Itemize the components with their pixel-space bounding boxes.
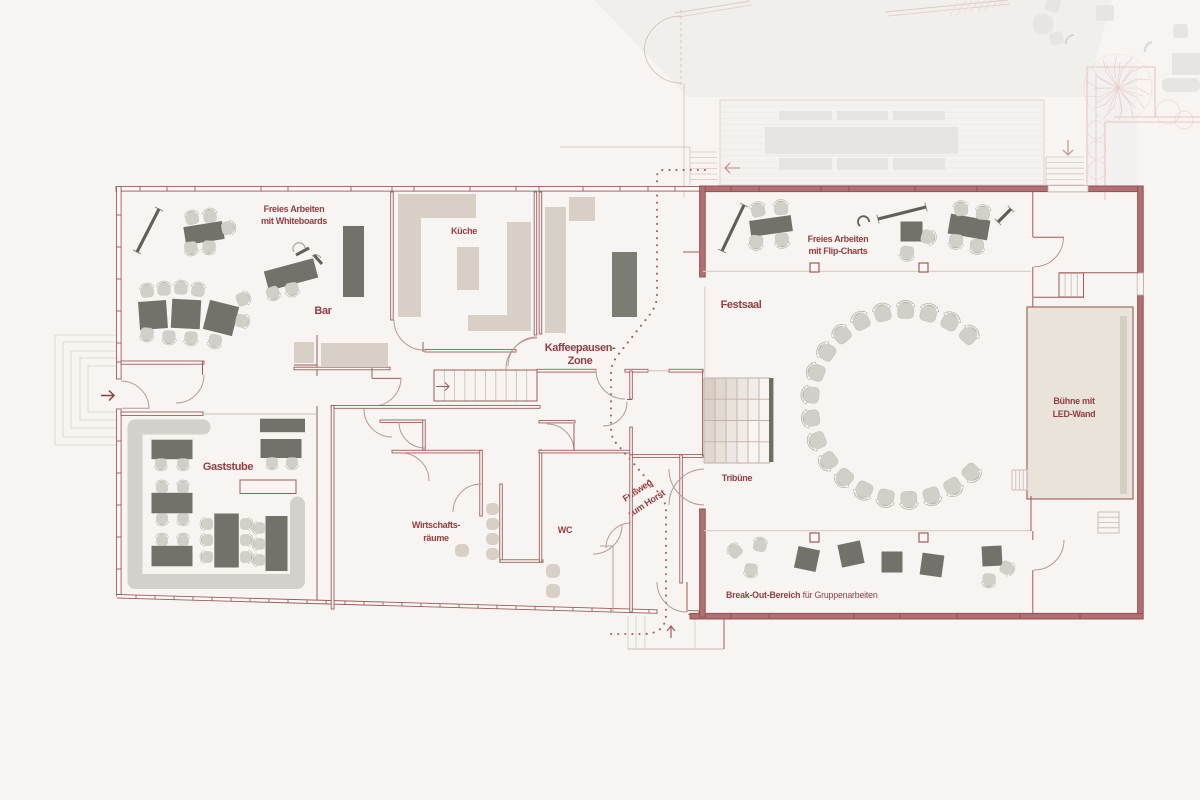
svg-text:Küche: Küche — [451, 226, 477, 236]
svg-text:LED-Wand: LED-Wand — [1053, 409, 1096, 419]
svg-text:Freies Arbeiten: Freies Arbeiten — [264, 204, 325, 214]
svg-text:räume: räume — [423, 533, 449, 543]
svg-text:Tribüne: Tribüne — [722, 473, 753, 483]
svg-text:Bühne mit: Bühne mit — [1053, 396, 1095, 406]
svg-text:Festsaal: Festsaal — [721, 299, 762, 311]
svg-text:Freies Arbeiten: Freies Arbeiten — [808, 234, 869, 244]
svg-text:Zone: Zone — [568, 355, 593, 367]
svg-text:Kaffeepausen-: Kaffeepausen- — [545, 342, 616, 354]
svg-text:mit Whiteboards: mit Whiteboards — [261, 216, 327, 226]
svg-text:WC: WC — [558, 525, 573, 535]
svg-text:Wirtschafts-: Wirtschafts- — [412, 520, 461, 530]
svg-text:Bar: Bar — [314, 305, 332, 317]
svg-text:Break-Out-Bereich für Gruppena: Break-Out-Bereich für Gruppenarbeiten — [726, 590, 878, 600]
svg-text:Gaststube: Gaststube — [203, 461, 253, 473]
svg-text:mit Flip-Charts: mit Flip-Charts — [808, 246, 867, 256]
